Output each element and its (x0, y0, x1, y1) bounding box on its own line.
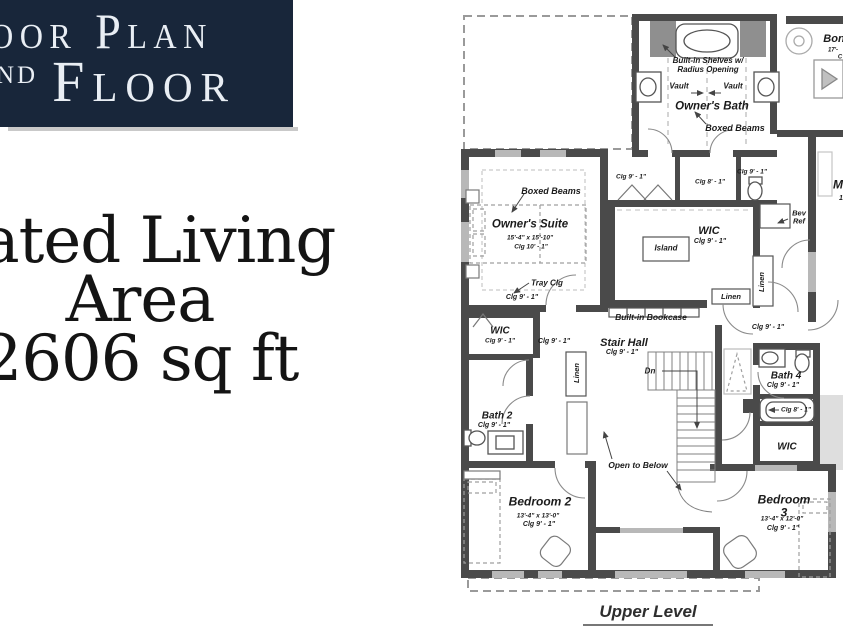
label-wic-main: WIC (698, 225, 719, 237)
label-linen-vertical-left: Linen (573, 363, 581, 383)
upper-level-caption: Upper Level (583, 602, 713, 626)
label-stair-hall: Stair Hall (600, 337, 648, 349)
label-bonus-clg-partial: C (838, 55, 842, 62)
label-bedroom2: Bedroom 2 (509, 495, 572, 508)
title-block-shadow (8, 127, 298, 131)
label-wic-left-clg: Clg 9' - 1" (485, 337, 515, 344)
label-boxed-beams-suite: Boxed Beams (521, 186, 581, 196)
label-built-in-shelves: Built-in Shelves w/ Radius Opening (673, 57, 744, 75)
title-2nd-suffix: nd (0, 62, 38, 89)
label-bonus-partial: Bon (823, 33, 843, 45)
label-owners-suite-clg: Clg 10' - 1" (514, 243, 548, 250)
label-bath2-clg: Clg 9' - 1" (478, 422, 510, 430)
heading-line-2: Area (0, 271, 360, 330)
label-built-in-bookcase: Built-in Bookcase (615, 313, 687, 323)
heated-living-area-heading: eated Living Area 2606 sq ft (0, 212, 360, 389)
label-room-m-dim-partial: 1 (839, 195, 843, 203)
label-island: Island (654, 245, 677, 254)
label-linen-vertical-right: Linen (758, 272, 766, 292)
label-room-m-partial: M (833, 178, 843, 191)
label-bonus-dim-partial: 17'- (828, 48, 838, 55)
label-wic-bath4: WIC (777, 441, 796, 452)
label-clg-wc: Clg 9' - 1" (737, 168, 767, 175)
label-vault-right: Vault (723, 83, 742, 92)
label-bath4-clg: Clg 9' - 1" (767, 382, 799, 390)
heading-line-3: 2606 sq ft (0, 330, 360, 389)
label-boxed-beams-bath: Boxed Beams (705, 123, 765, 133)
stairs (648, 352, 715, 512)
label-clg-hall-right: Clg 9' - 1" (752, 324, 784, 332)
label-wic-left: WIC (490, 325, 509, 336)
label-bev-ref: Bev Ref (792, 210, 806, 227)
title-floor-word: Floor (52, 49, 236, 114)
label-owners-bath: Owner's Bath (675, 101, 749, 114)
label-bedroom2-clg: Clg 9' - 1" (523, 521, 555, 529)
label-clg-hall-left: Clg 9' - 1" (538, 338, 570, 346)
porch-patch (818, 395, 843, 470)
label-stair-hall-clg: Clg 9' - 1" (606, 349, 638, 357)
label-tray-clg: Tray Clg (531, 280, 563, 289)
label-vault-left: Vault (669, 83, 688, 92)
label-dn: Dn (645, 368, 656, 377)
label-bedroom3-clg: Clg 9' - 1" (767, 525, 799, 533)
label-bath4: Bath 4 (771, 370, 802, 381)
label-bath2: Bath 2 (482, 410, 513, 421)
label-owners-suite: Owner's Suite (492, 219, 568, 232)
label-clg-closet: Clg 9' - 1" (616, 173, 646, 180)
label-suite-clg9: Clg 9' - 1" (506, 294, 538, 302)
label-clg-shower: Clg 8' - 1" (695, 178, 725, 185)
title-line-2nd-floor: ndFloor (0, 48, 236, 115)
flyer-page: oor Plan ndFloor eated Living Area 2606 … (0, 0, 843, 632)
label-wic-main-clg: Clg 9' - 1" (694, 238, 726, 246)
label-owners-suite-dims: 15'-4" x 15'-10" (507, 234, 553, 241)
label-linen-horizontal: Linen (721, 293, 741, 301)
label-tub-clg: Clg 8' - 1" (781, 406, 811, 413)
label-open-to-below: Open to Below (608, 461, 668, 471)
label-bedroom3-dims: 13'-4" x 12'-0" (761, 515, 804, 522)
label-bedroom2-dims: 13'-4" x 13'-0" (517, 512, 560, 519)
